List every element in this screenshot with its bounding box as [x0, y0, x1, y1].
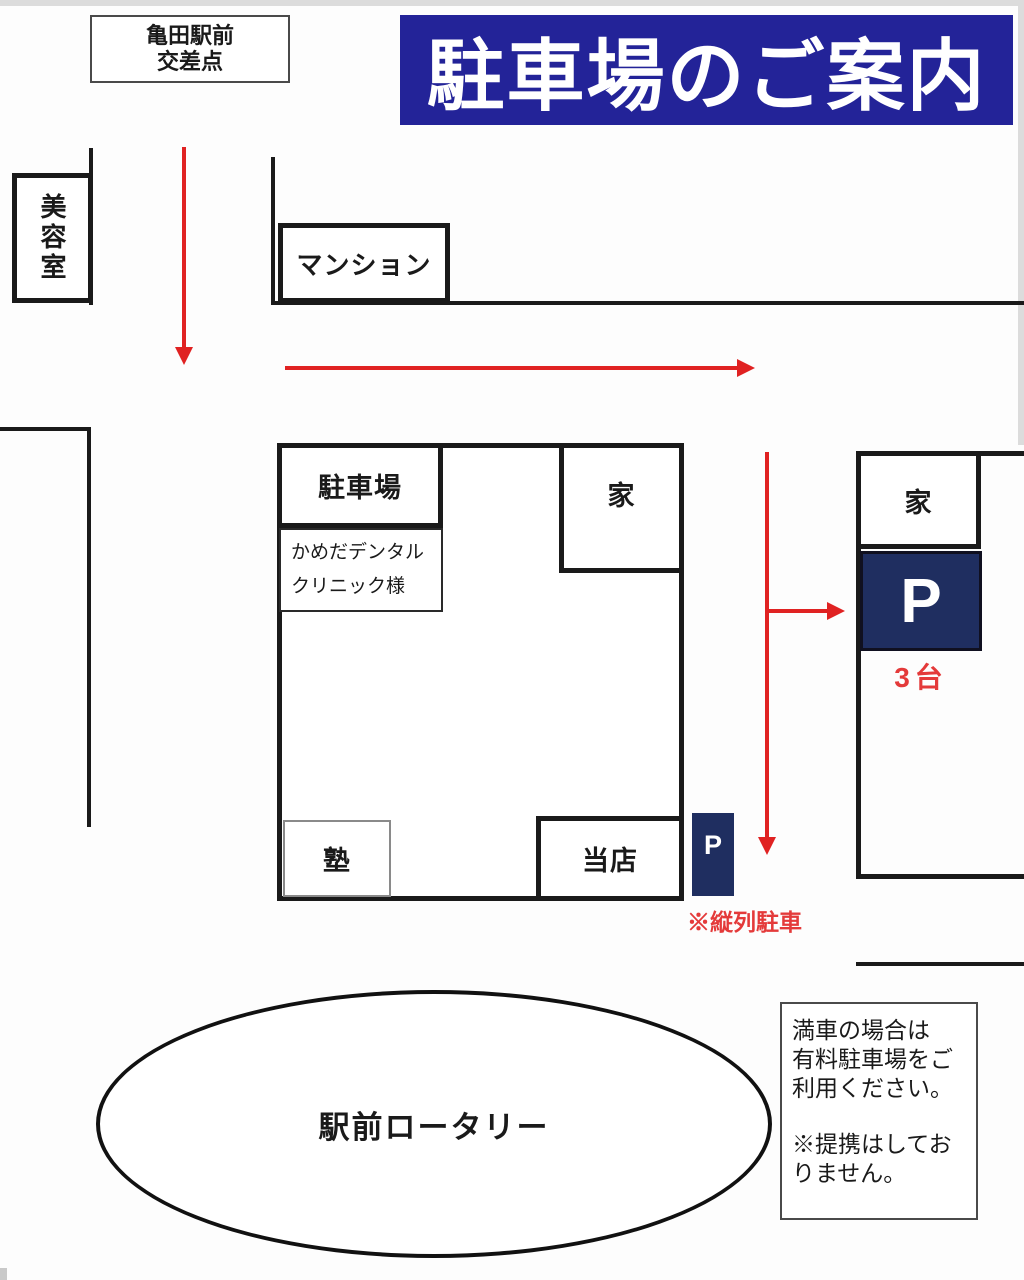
road-line-left-corner-horizontal — [0, 427, 91, 431]
house-right-label: 家 — [905, 481, 933, 520]
road-line-mansion-vertical — [271, 157, 275, 305]
notice-line: りません。 — [792, 1159, 968, 1188]
route-arrow-down-top-head — [175, 347, 193, 365]
route-arrow-down-right-shaft — [765, 452, 769, 837]
dental-clinic-box: かめだデンタル クリニック様 — [279, 528, 443, 612]
route-arrow-branch-head — [827, 602, 845, 620]
parking-lot-box: 駐車場 — [277, 443, 443, 528]
dental-clinic-label-line1: かめだデンタル — [291, 536, 424, 570]
parking-p-large-box: P — [860, 551, 982, 651]
route-arrow-right-main-head — [737, 359, 755, 377]
title-banner: 駐車場のご案内 — [400, 15, 1013, 125]
route-arrow-right-main-shaft — [285, 366, 737, 370]
photo-edge-top — [0, 0, 1024, 6]
house-center-box: 家 — [559, 443, 684, 573]
notice-line: ※提携はしてお — [792, 1130, 968, 1159]
house-right-box: 家 — [856, 451, 981, 549]
cram-school-label: 塾 — [323, 839, 351, 878]
route-arrow-down-right-head — [758, 837, 776, 855]
road-line-lower-right — [856, 962, 1024, 966]
station-rotary-ellipse: 駅前ロータリー — [96, 990, 772, 1258]
parking-p-small-box: P — [692, 813, 734, 896]
intersection-label-line1: 亀田駅前 — [146, 23, 234, 49]
notice-line: 有料駐車場をご — [792, 1045, 968, 1074]
mansion-box: マンション — [278, 223, 450, 303]
notice-line: 利用ください。 — [792, 1074, 968, 1103]
road-line-left-lower-vertical — [87, 427, 91, 827]
station-rotary-label: 駅前ロータリー — [319, 1102, 550, 1147]
notice-line: 満車の場合は — [792, 1016, 968, 1045]
notice-blank-line — [792, 1103, 968, 1130]
tandem-parking-note: ※縦列駐車 — [687, 903, 827, 937]
page-title: 駐車場のご案内 — [426, 14, 986, 126]
cram-school-box: 塾 — [283, 820, 391, 897]
dental-clinic-label-line2: クリニック様 — [291, 570, 405, 604]
house-center-label: 家 — [608, 474, 636, 513]
right-block-bottom-edge — [856, 874, 1024, 879]
parking-lot-label: 駐車場 — [318, 466, 402, 505]
route-arrow-branch-shaft — [765, 609, 827, 613]
beauty-salon-box: 美容室 — [12, 173, 93, 303]
mansion-label: マンション — [296, 245, 431, 282]
route-arrow-down-top-shaft — [182, 147, 186, 347]
parking-p-large-label: P — [900, 566, 941, 637]
intersection-label-box: 亀田駅前 交差点 — [90, 15, 290, 83]
photo-edge-right — [1018, 0, 1024, 445]
parking-guide-map: { "title_banner": { "text": "駐車場のご案内" },… — [0, 0, 1024, 1280]
our-store-label: 当店 — [582, 839, 638, 878]
beauty-salon-label: 美容室 — [34, 193, 71, 283]
full-parking-notice-box: 満車の場合は 有料駐車場をご 利用ください。 ※提携はしてお りません。 — [780, 1002, 978, 1220]
photo-edge-bottom-left — [0, 1268, 7, 1280]
parking-p-small-label: P — [704, 830, 722, 861]
parking-capacity-label: 3台 — [860, 656, 982, 696]
our-store-box: 当店 — [536, 816, 684, 901]
intersection-label-line2: 交差点 — [157, 49, 223, 75]
